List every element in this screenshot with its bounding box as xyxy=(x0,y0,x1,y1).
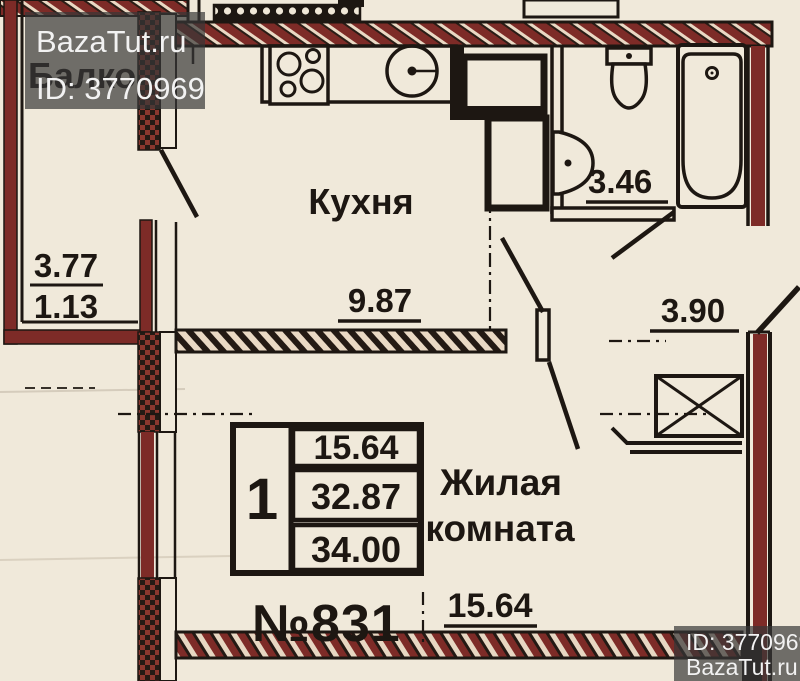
watermark-bottom-brand: BazaTut.ru xyxy=(686,654,798,680)
watermark-top-id: ID: 3770969 xyxy=(36,71,205,106)
kitchen-dim: 9.87 xyxy=(348,282,412,319)
floorplan-drawing: Балкон 3.77 1.13 xyxy=(0,0,800,681)
info-table: 1 15.64 32.87 34.00 xyxy=(233,425,421,573)
hallway-dim: 3.90 xyxy=(661,292,725,329)
watermark-top: BazaTut.ru ID: 3770969 xyxy=(25,12,205,109)
floorplan-scan: Балкон 3.77 1.13 xyxy=(0,0,800,681)
watermark-bottom: ID: 3770969 BazaTut.ru xyxy=(674,626,800,681)
living-room-label-line1: Жилая xyxy=(439,462,562,503)
apartment-number: №831 xyxy=(252,595,401,653)
table-area-no-balcony: 32.87 xyxy=(311,476,401,517)
watermark-top-brand: BazaTut.ru xyxy=(36,24,186,59)
table-total-area: 34.00 xyxy=(311,529,401,570)
wall-top xyxy=(150,22,772,46)
door-post xyxy=(537,310,549,360)
stove-icon xyxy=(270,46,328,104)
bathtub-icon xyxy=(678,45,746,207)
table-rooms-count: 1 xyxy=(246,467,278,532)
living-room-label-line2: комната xyxy=(425,508,575,549)
kitchen-label: Кухня xyxy=(308,181,413,222)
balcony-dim-top: 3.77 xyxy=(34,247,98,284)
table-living-area: 15.64 xyxy=(313,429,398,467)
balcony-dim-bottom: 1.13 xyxy=(34,288,98,325)
bathroom-dim: 3.46 xyxy=(588,163,652,200)
living-room-dim: 15.64 xyxy=(447,587,532,625)
balcony-outer-wall xyxy=(4,0,17,344)
balcony-bottom-wall xyxy=(4,330,150,344)
bathroom-wall-bottom xyxy=(552,208,674,220)
watermark-bottom-id: ID: 3770969 xyxy=(686,629,800,655)
